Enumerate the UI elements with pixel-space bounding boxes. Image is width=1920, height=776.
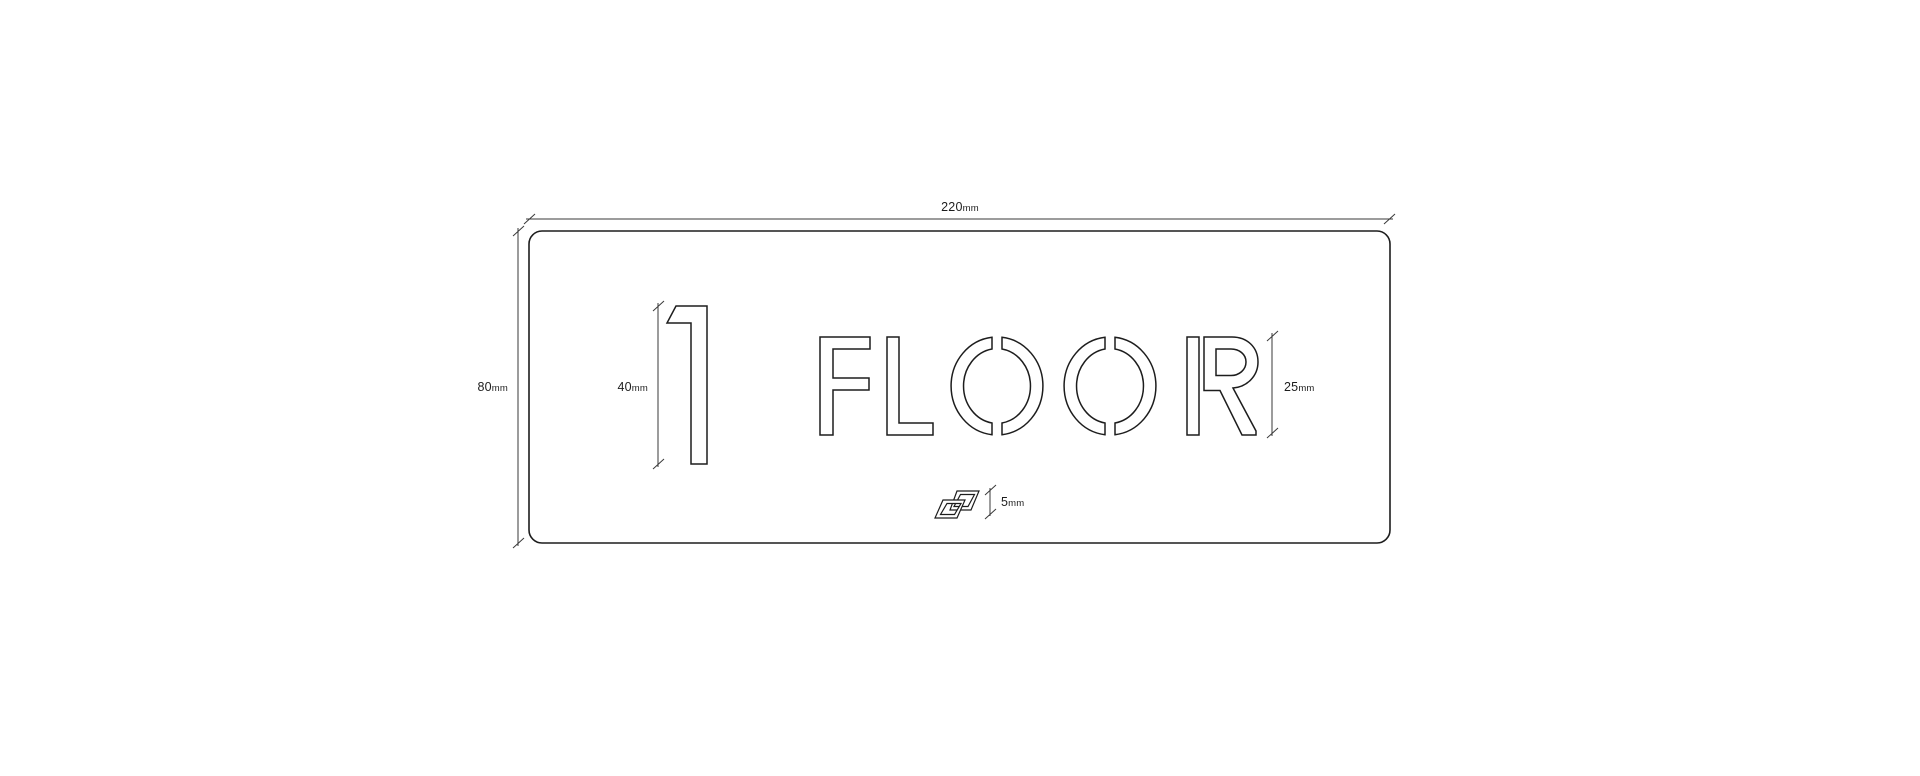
letter-height-dimension-label: 25mm: [1284, 381, 1315, 394]
width-dimension-label: 220mm: [941, 201, 979, 214]
letter-R-stem: [1187, 337, 1199, 435]
height-dimension: [513, 226, 524, 548]
height-dimension-label: 80mm: [477, 381, 508, 394]
drawing-canvas: 1 FLOOR: [0, 0, 1920, 776]
height-dimension-unit: mm: [492, 383, 508, 394]
number-height-dimension-value: 40: [617, 380, 631, 394]
width-dimension: [524, 214, 1395, 224]
number-height-dimension-label: 40mm: [617, 381, 648, 394]
width-dimension-unit: mm: [963, 203, 979, 214]
letter-height-dimension-value: 25: [1284, 380, 1298, 394]
logo-height-dimension-label: 5mm: [1001, 496, 1024, 509]
sign-technical-drawing: 1 FLOOR: [0, 0, 1920, 776]
number-height-dimension-unit: mm: [632, 383, 648, 394]
letter-height-dimension-unit: mm: [1298, 383, 1314, 394]
height-dimension-value: 80: [477, 380, 491, 394]
width-dimension-value: 220: [941, 200, 962, 214]
logo-height-dimension-unit: mm: [1008, 498, 1024, 509]
